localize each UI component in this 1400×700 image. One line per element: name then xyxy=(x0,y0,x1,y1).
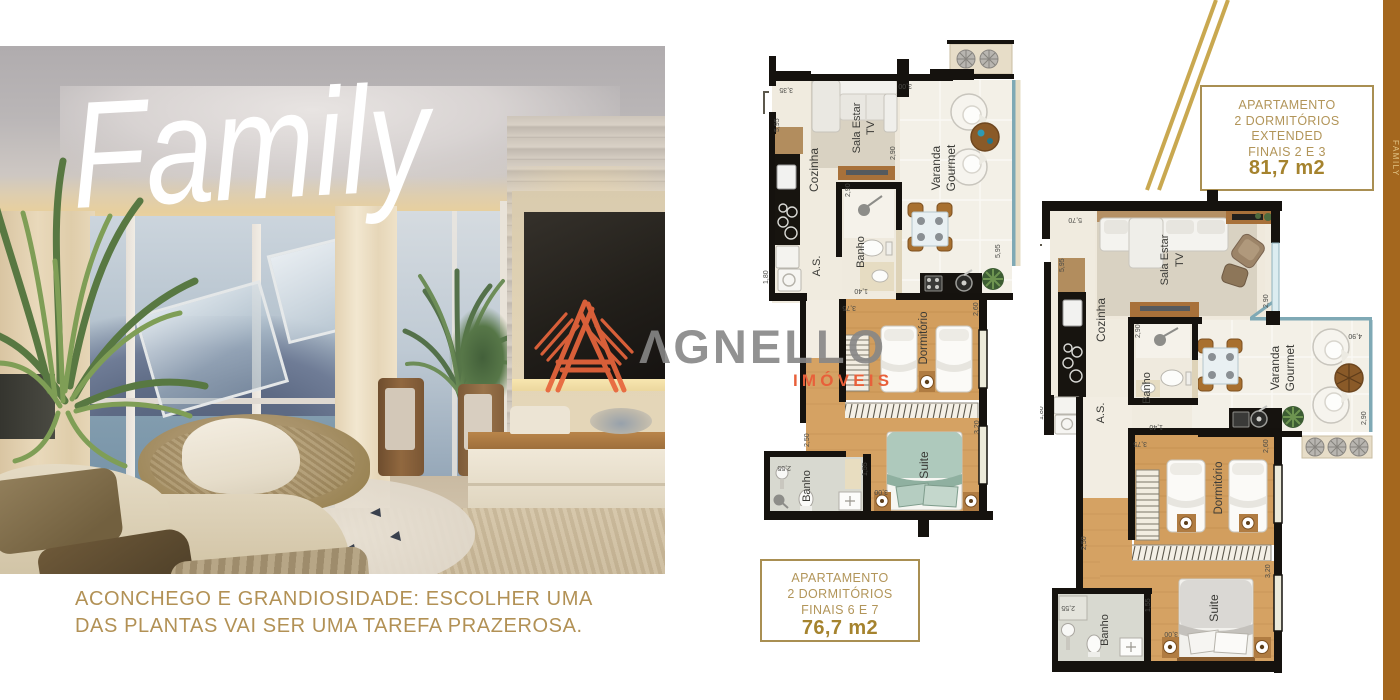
svg-text:Banho: Banho xyxy=(1141,372,1153,404)
svg-text:Gourmet: Gourmet xyxy=(1283,344,1297,391)
svg-text:3,20: 3,20 xyxy=(974,420,981,434)
svg-text:2,90: 2,90 xyxy=(1361,411,1368,425)
svg-text:2,90: 2,90 xyxy=(845,183,852,197)
svg-text:3,20: 3,20 xyxy=(1265,564,1272,578)
svg-text:Sala Estar: Sala Estar xyxy=(851,102,863,153)
svg-text:1,55: 1,55 xyxy=(862,462,869,476)
svg-text:1,55: 1,55 xyxy=(1145,598,1152,612)
svg-text:Dormitório: Dormitório xyxy=(1213,461,1225,514)
svg-text:2,50: 2,50 xyxy=(804,433,811,447)
svg-text:2,55: 2,55 xyxy=(777,464,791,471)
svg-text:Cozinha: Cozinha xyxy=(1094,298,1108,342)
svg-text:2,90: 2,90 xyxy=(1263,294,1270,308)
svg-text:TV: TV xyxy=(865,120,877,135)
svg-text:3,00: 3,00 xyxy=(874,488,888,495)
svg-text:5,95: 5,95 xyxy=(774,118,781,132)
svg-text:3,75: 3,75 xyxy=(1133,440,1147,447)
svg-text:Banho: Banho xyxy=(801,470,813,502)
svg-text:Suite: Suite xyxy=(1207,594,1221,622)
svg-text:Suite: Suite xyxy=(917,451,931,479)
svg-text:4,90: 4,90 xyxy=(1348,332,1362,339)
svg-text:2,90: 2,90 xyxy=(1135,324,1142,338)
svg-text:Sala Estar: Sala Estar xyxy=(1159,234,1171,285)
svg-text:1,80: 1,80 xyxy=(1040,406,1045,420)
svg-text:Varanda: Varanda xyxy=(929,145,943,190)
svg-text:5,70: 5,70 xyxy=(1068,216,1082,223)
svg-text:Banho: Banho xyxy=(1099,614,1111,646)
svg-text:Cozinha: Cozinha xyxy=(807,148,821,192)
svg-text:A.S.: A.S. xyxy=(811,256,823,277)
svg-text:3,00: 3,00 xyxy=(1164,630,1178,637)
svg-text:5,95: 5,95 xyxy=(1059,258,1066,272)
svg-text:TV: TV xyxy=(1174,252,1186,267)
svg-text:3,00: 3,00 xyxy=(898,82,912,89)
svg-text:Gourmet: Gourmet xyxy=(944,144,958,191)
svg-text:2,50: 2,50 xyxy=(1081,536,1088,550)
svg-text:2,60: 2,60 xyxy=(1263,439,1270,453)
svg-text:Family: Family xyxy=(67,52,440,241)
svg-text:5,95: 5,95 xyxy=(995,244,1002,258)
svg-text:2,55: 2,55 xyxy=(1061,604,1075,611)
svg-text:1,80: 1,80 xyxy=(763,270,770,284)
svg-text:A.S.: A.S. xyxy=(1095,403,1107,424)
svg-text:3,75: 3,75 xyxy=(842,304,856,311)
svg-text:2,90: 2,90 xyxy=(890,146,897,160)
svg-text:2,60: 2,60 xyxy=(973,302,980,316)
svg-text:1,40: 1,40 xyxy=(854,287,868,294)
svg-text:Banho: Banho xyxy=(855,236,867,268)
svg-text:Varanda: Varanda xyxy=(1268,345,1282,390)
svg-text:3,35: 3,35 xyxy=(779,86,793,93)
svg-text:1,40: 1,40 xyxy=(1149,423,1163,430)
